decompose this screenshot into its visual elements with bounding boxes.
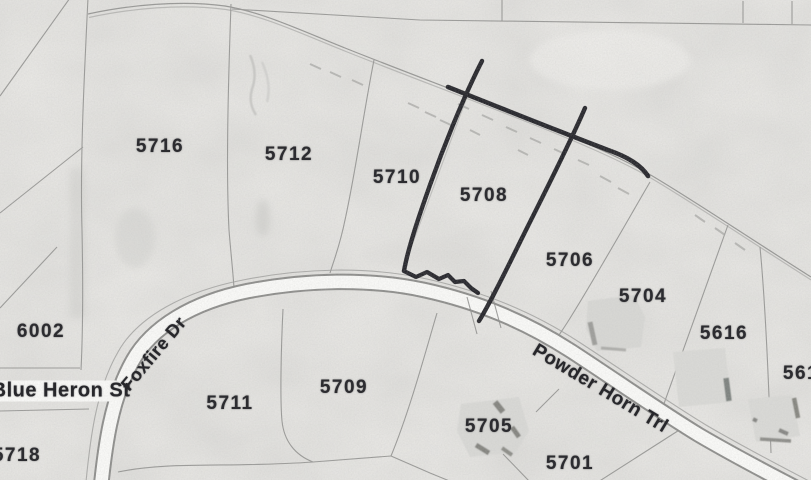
parcel-label-5712: 5712	[265, 144, 313, 166]
parcel-label-5710: 5710	[373, 167, 421, 189]
parcel-label-5704: 5704	[619, 286, 667, 308]
parcel-label-5616: 5616	[700, 323, 748, 345]
parcel-label-5705: 5705	[465, 416, 513, 438]
parcel-label-6002: 6002	[17, 321, 65, 343]
labels-layer: 5716571257105708570657045616561600257115…	[0, 0, 811, 480]
parcel-label-5708: 5708	[460, 185, 508, 207]
street-label-blue-heron-st: Blue Heron St	[0, 380, 130, 403]
plat-map: 5716571257105708570657045616561600257115…	[0, 0, 811, 480]
parcel-label-561: 561	[783, 363, 811, 385]
parcel-label-5711: 5711	[206, 393, 253, 415]
parcel-label-5718: 5718	[0, 445, 41, 467]
parcel-label-5716: 5716	[136, 136, 184, 158]
parcel-label-5701: 5701	[546, 453, 594, 475]
parcel-label-5709: 5709	[320, 377, 368, 399]
parcel-label-5706: 5706	[546, 250, 594, 272]
street-label-powder-horn-trl: Powder Horn Trl	[528, 340, 672, 438]
